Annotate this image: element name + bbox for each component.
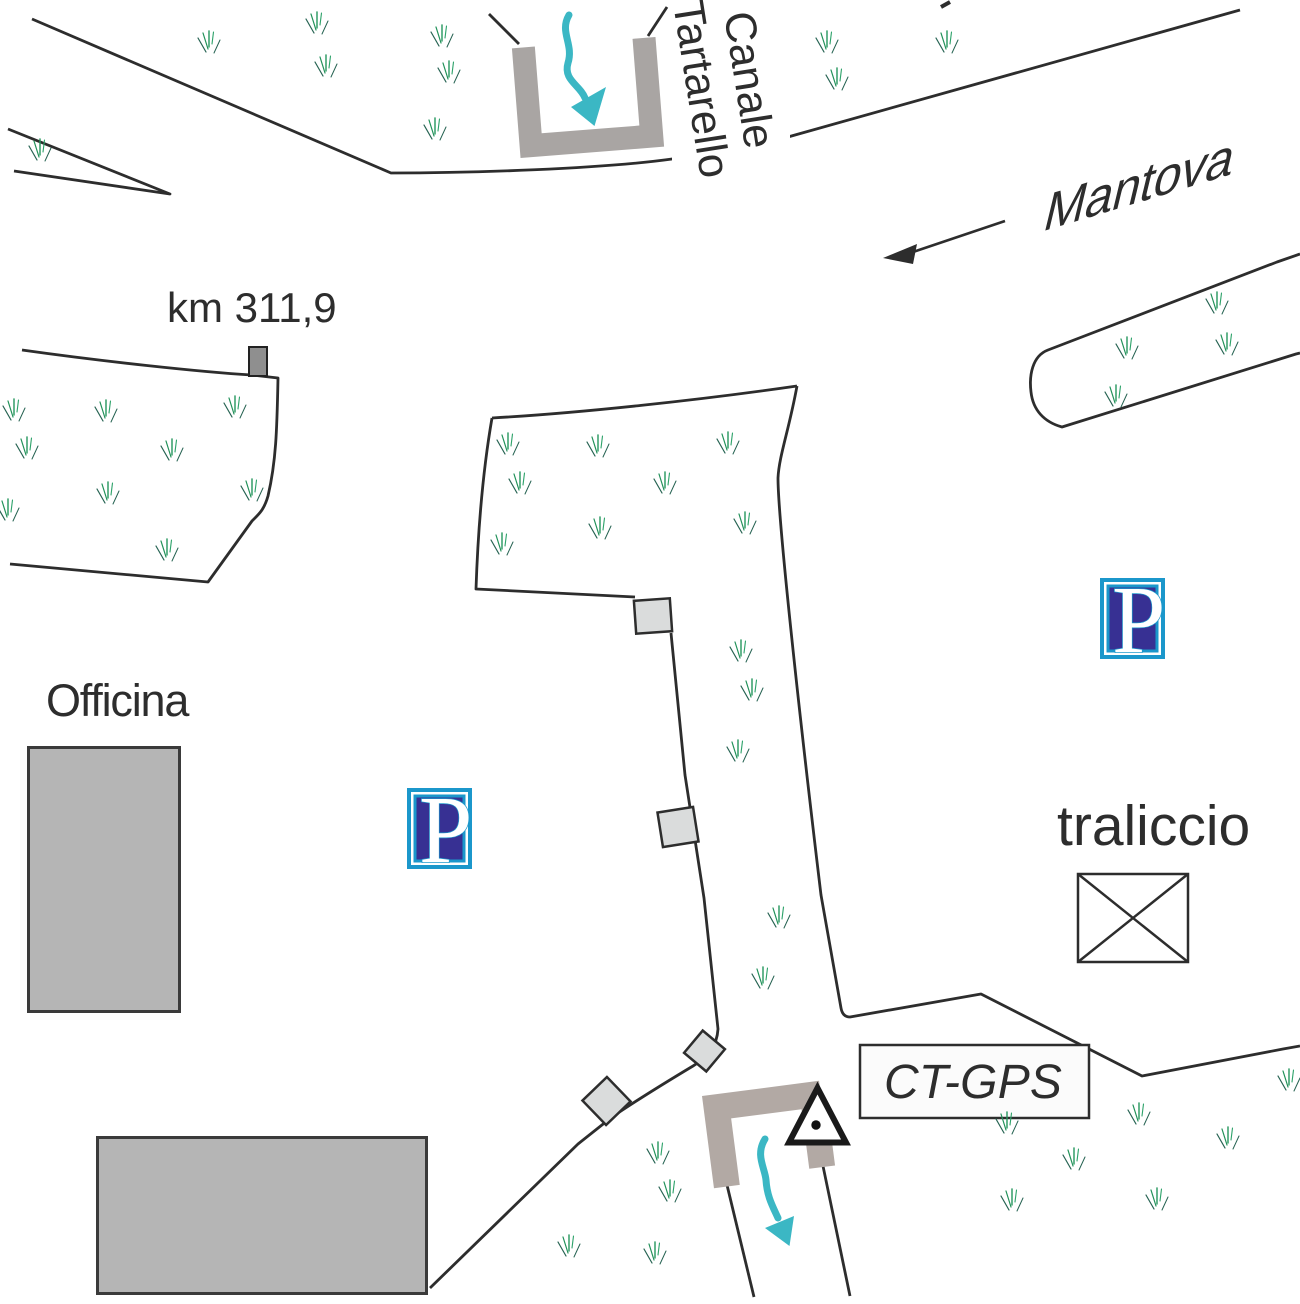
svg-text:Officina: Officina — [46, 675, 190, 726]
svg-text:km 311,9: km 311,9 — [167, 284, 337, 331]
svg-text:traliccio: traliccio — [1057, 794, 1250, 858]
svg-text:CT-GPS: CT-GPS — [884, 1056, 1062, 1109]
